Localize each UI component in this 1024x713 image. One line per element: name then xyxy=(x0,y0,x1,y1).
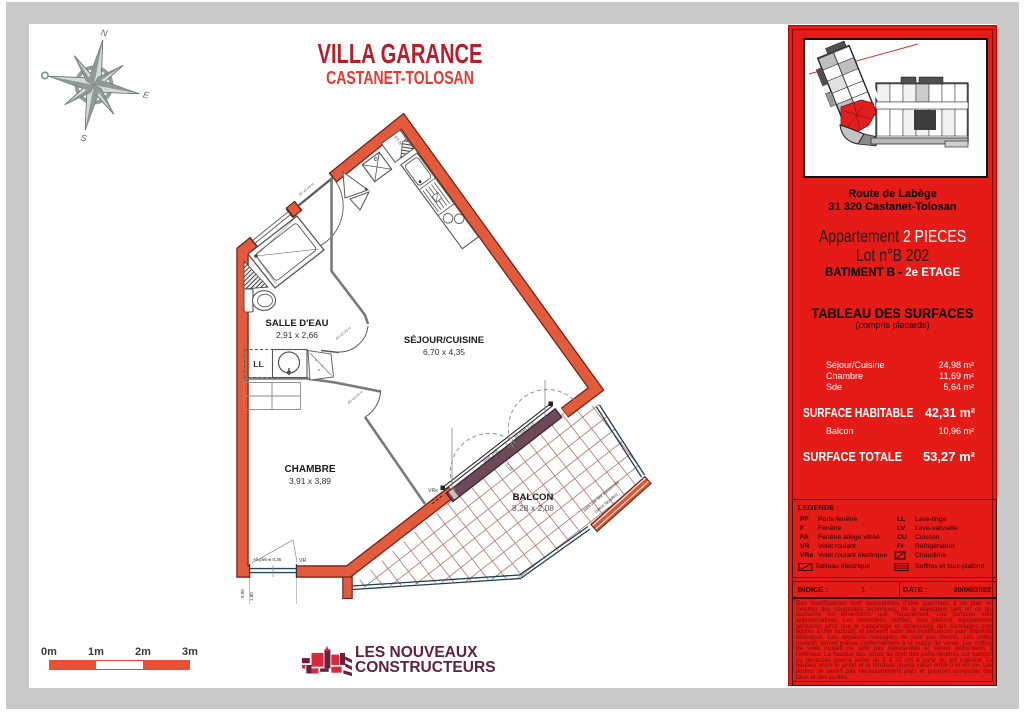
svg-text:2,19: 2,19 xyxy=(505,462,514,472)
svg-text:All.pleine 0,35: All.pleine 0,35 xyxy=(253,557,282,562)
svg-text:2,91 x 2,66: 2,91 x 2,66 xyxy=(276,330,318,340)
svg-text:6,70 x 4,35: 6,70 x 4,35 xyxy=(423,347,465,357)
svg-text:SÉJOUR/CUISINE: SÉJOUR/CUISINE xyxy=(404,335,484,346)
svg-text:CHAMBRE: CHAMBRE xyxy=(284,464,335,475)
svg-text:3,91 x 3,89: 3,91 x 3,89 xyxy=(289,476,331,486)
svg-text:N: N xyxy=(100,27,109,38)
svg-text:1,80: 1,80 xyxy=(249,592,254,601)
svg-text:80 x2,04 H: 80 x2,04 H xyxy=(335,326,352,341)
svg-text:0,90: 0,90 xyxy=(240,589,245,598)
svg-text:80 x2,04 H: 80 x2,04 H xyxy=(347,390,364,405)
svg-text:VR: VR xyxy=(299,558,306,564)
svg-text:VRe: VRe xyxy=(428,488,438,494)
svg-text:BALCON: BALCON xyxy=(513,492,554,503)
svg-text:LL: LL xyxy=(253,359,263,369)
svg-text:E: E xyxy=(142,90,151,101)
svg-text:8,28 x 2,08: 8,28 x 2,08 xyxy=(512,503,554,513)
svg-text:SALLE D'EAU: SALLE D'EAU xyxy=(266,318,329,329)
svg-text:S: S xyxy=(80,133,88,144)
